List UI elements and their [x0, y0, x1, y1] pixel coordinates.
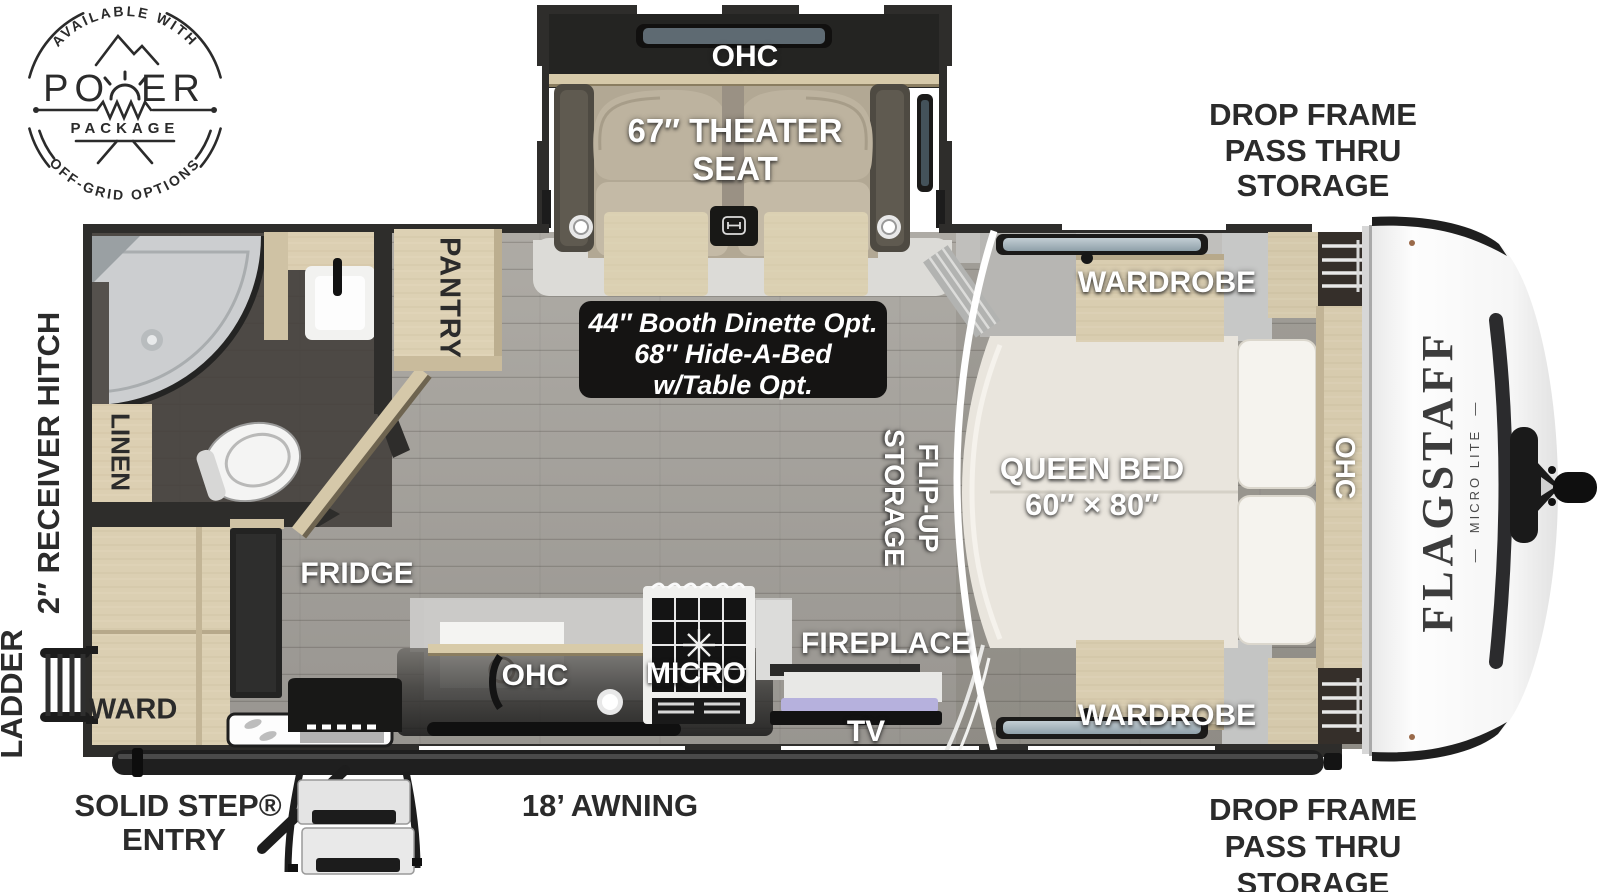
- svg-text:PACKAGE: PACKAGE: [71, 120, 180, 137]
- svg-text:— MICRO LITE —: — MICRO LITE —: [1467, 400, 1482, 563]
- svg-text:ER: ER: [141, 68, 206, 110]
- svg-text:FLAGSTAFF: FLAGSTAFF: [1413, 329, 1462, 632]
- svg-text:PO: PO: [43, 68, 110, 110]
- svg-text:OFF-GRID OPTIONS: OFF-GRID OPTIONS: [47, 155, 204, 204]
